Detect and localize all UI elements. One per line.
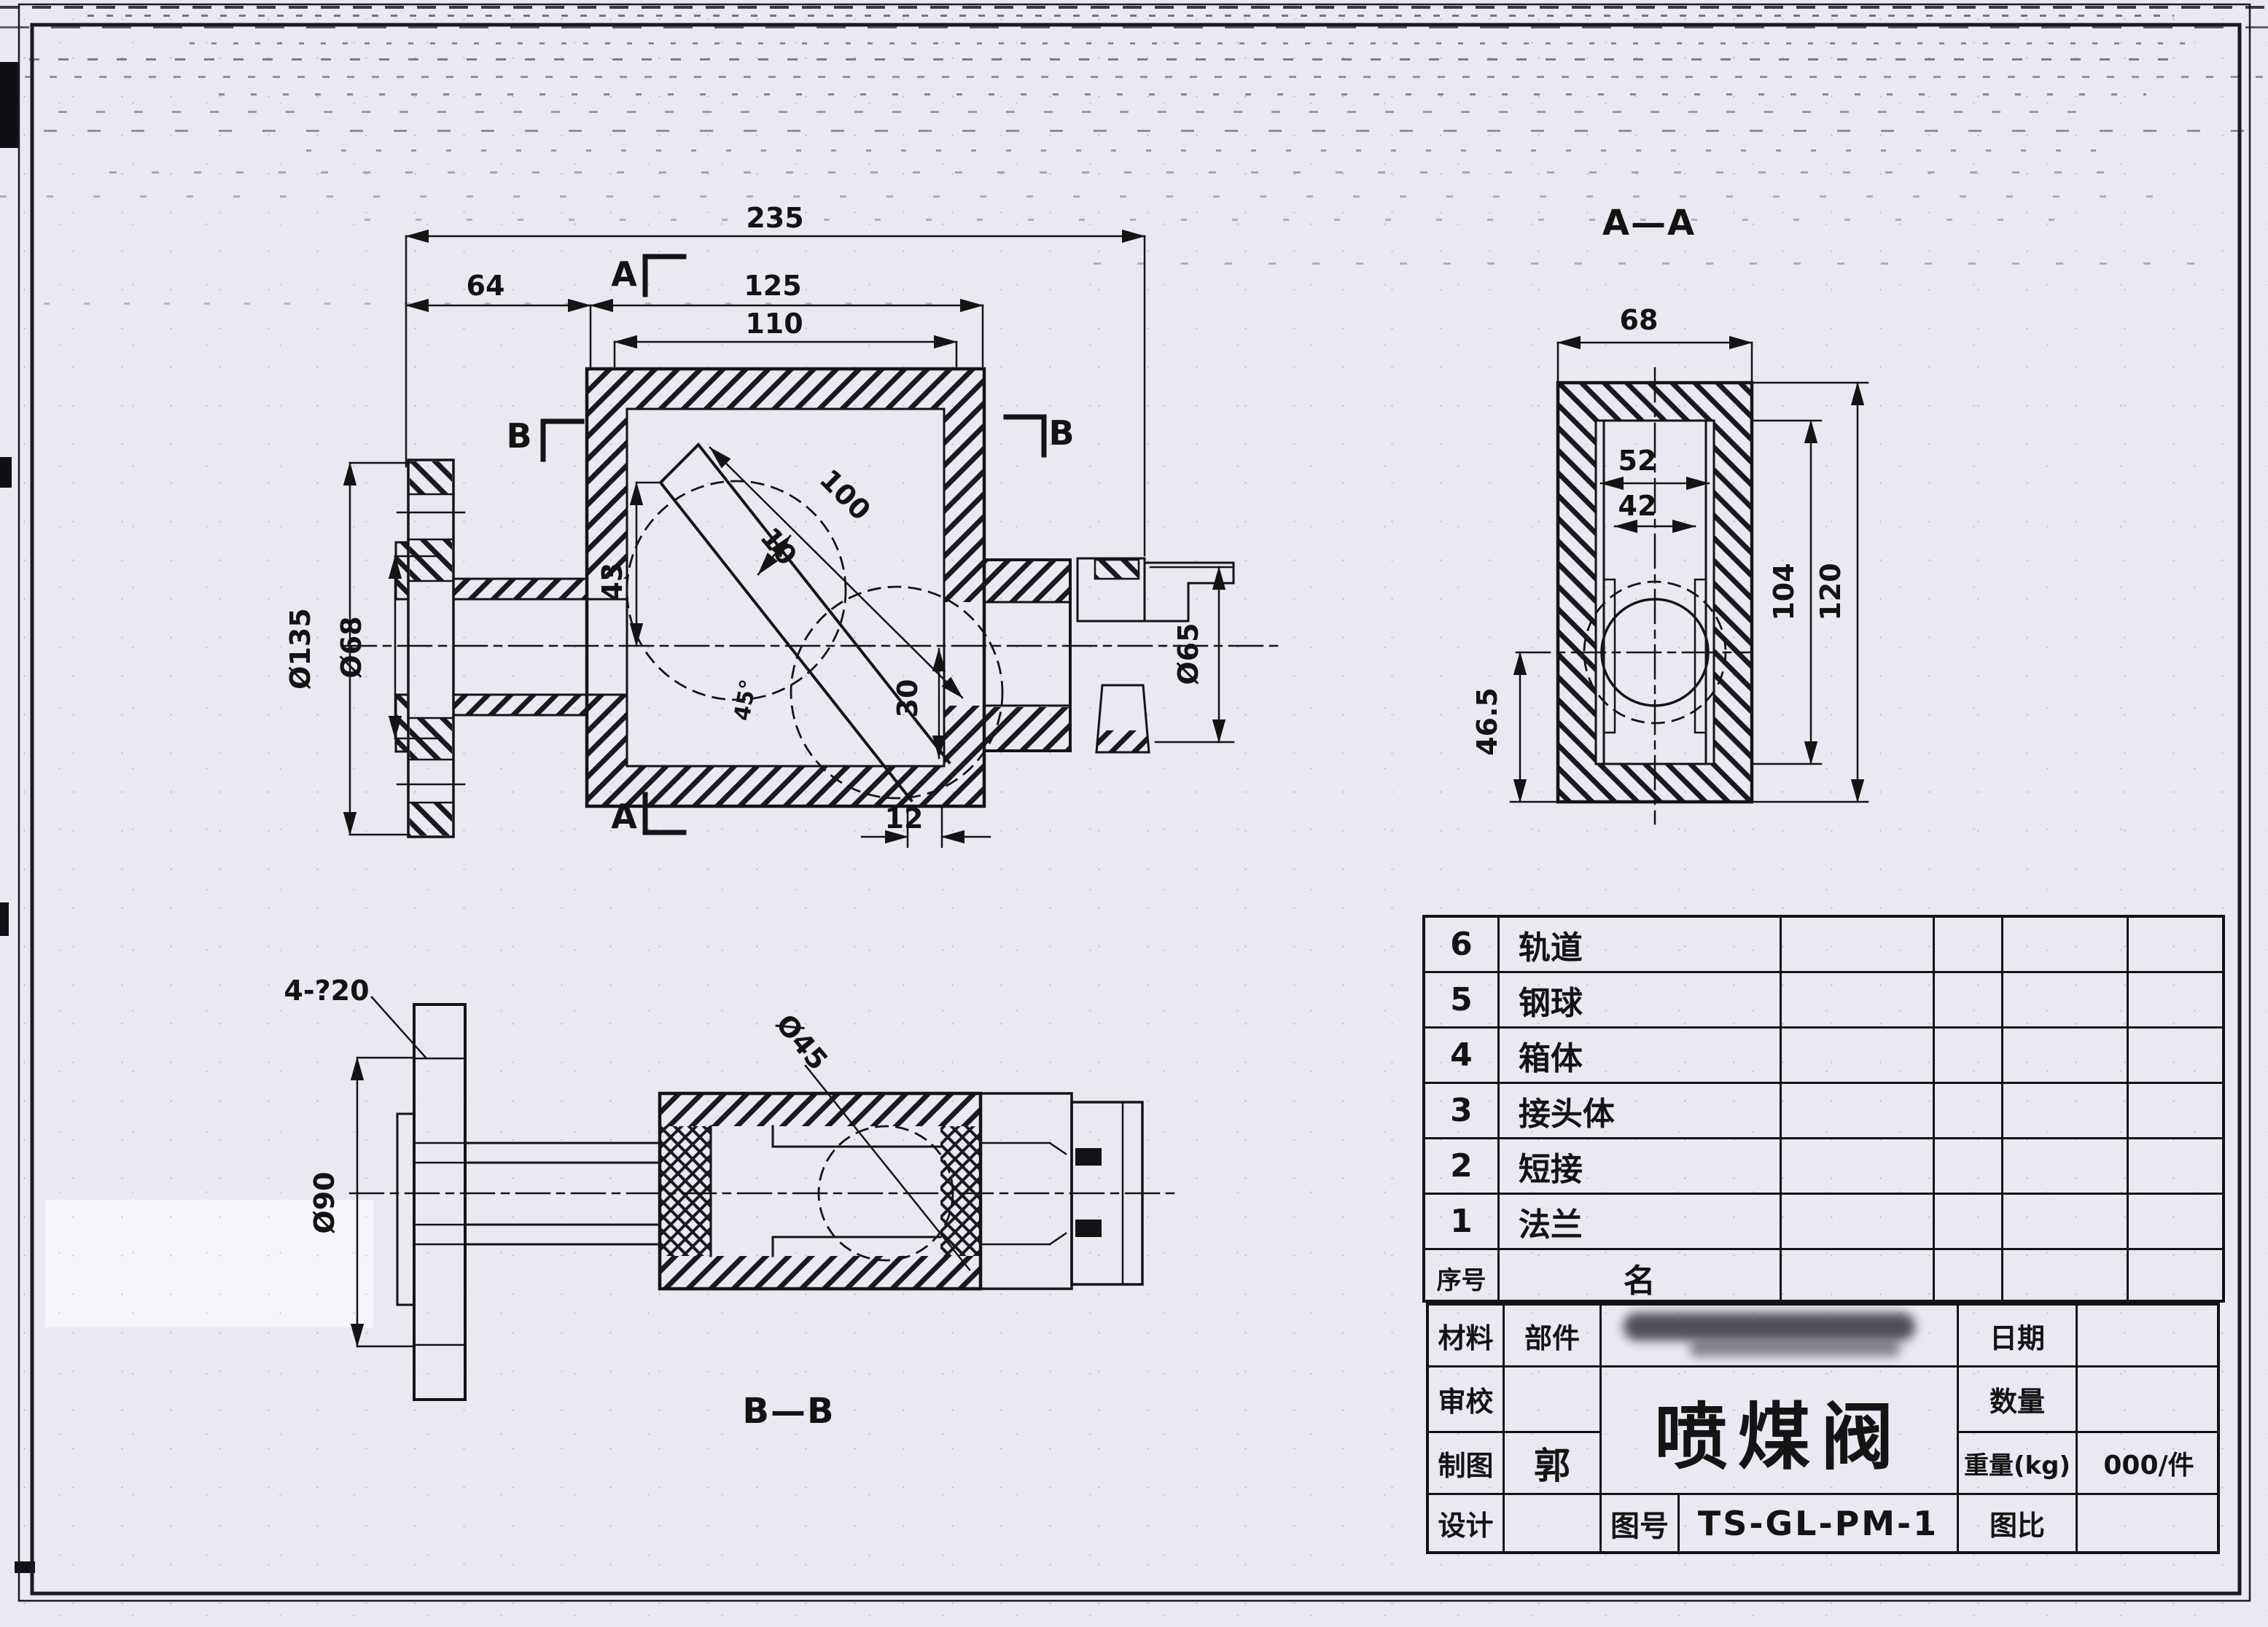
bb-section-view: 4-?20 Ø90 Ø45 B—B (284, 975, 1181, 1432)
dim-dia65: Ø65 (1172, 623, 1204, 684)
table-row: 5 钢球 (1425, 973, 2222, 1029)
bb-title: B—B (742, 1391, 835, 1432)
dim-dia135: Ø135 (284, 608, 316, 690)
dim-110: 110 (745, 308, 803, 340)
part-name: 钢球 (1500, 973, 1782, 1029)
parts-table: 6 轨道 5 钢球 4 箱体 3 接头体 2 短接 1 法兰 (1422, 915, 2225, 1303)
drawing-no: TS-GL-PM-1 (1680, 1495, 1959, 1551)
part-no: 1 (1425, 1195, 1500, 1250)
material-label: 材料 (1429, 1306, 1505, 1367)
part-name: 轨道 (1500, 918, 1782, 973)
dim-46-5: 46.5 (1471, 687, 1503, 756)
front-view: 235 64 125 110 43 100 10 30 45° 12 Ø65 Ø… (284, 202, 1279, 847)
dim-43: 43 (596, 563, 628, 601)
check-label: 审校 (1429, 1367, 1505, 1433)
part-no: 5 (1425, 973, 1500, 1029)
part-no: 2 (1425, 1139, 1500, 1195)
dim-dia68: Ø68 (335, 616, 367, 678)
dim-bolt-holes: 4-?20 (284, 975, 369, 1007)
section-label-b-left: B (506, 416, 531, 456)
section-label-a-bottom: A (611, 797, 637, 836)
dim-125: 125 (744, 270, 801, 302)
table-row: 6 轨道 (1425, 918, 2222, 973)
dim-42: 42 (1618, 490, 1657, 522)
weight-value: 000/件 (2078, 1433, 2220, 1495)
dim-64: 64 (467, 270, 505, 302)
part-label: 部件 (1505, 1306, 1602, 1367)
dim-68: 68 (1620, 304, 1659, 336)
product-title: 喷煤阀 (1602, 1367, 1959, 1495)
dim-angle: 45° (729, 677, 761, 722)
part-name: 短接 (1500, 1139, 1782, 1195)
section-label-b-right: B (1048, 413, 1074, 453)
table-row: 3 接头体 (1425, 1084, 2222, 1139)
part-name: 箱体 (1500, 1029, 1782, 1084)
design-label: 设计 (1429, 1495, 1505, 1551)
dim-12: 12 (885, 803, 924, 835)
smudge-cell (1602, 1306, 1959, 1367)
header-no: 序号 (1425, 1250, 1500, 1306)
scanned-engineering-drawing: 235 64 125 110 43 100 10 30 45° 12 Ø65 Ø… (0, 0, 2268, 1627)
qty-label: 数量 (1959, 1367, 2078, 1433)
title-block: 材料 审校 制图 设计 部件 郭 喷煤阀 图号 TS-GL-PM-1 日期 数量… (1426, 1303, 2220, 1554)
aa-section-view: A—A 68 52 42 104 120 46.5 (1471, 203, 1868, 824)
dim-235: 235 (746, 202, 803, 234)
aa-title: A—A (1602, 203, 1696, 243)
table-header-row: 序号 名 (1425, 1250, 2222, 1306)
section-label-a-top: A (611, 254, 637, 294)
part-no: 4 (1425, 1029, 1500, 1084)
part-no: 6 (1425, 918, 1500, 973)
dim-30: 30 (892, 679, 924, 718)
weight-label: 重量(kg) (1959, 1433, 2078, 1495)
dim-dia45: Ø45 (770, 1008, 834, 1077)
draftsman-name: 郭 (1505, 1433, 1602, 1495)
dim-100: 100 (814, 463, 877, 526)
table-row: 1 法兰 (1425, 1195, 2222, 1250)
draft-label: 制图 (1429, 1433, 1505, 1495)
header-name: 名 (1500, 1250, 1782, 1306)
dim-104: 104 (1768, 563, 1800, 620)
part-name: 接头体 (1500, 1084, 1782, 1139)
dim-dia90: Ø90 (308, 1171, 340, 1233)
dim-120: 120 (1815, 563, 1847, 620)
table-row: 4 箱体 (1425, 1029, 2222, 1084)
part-no: 3 (1425, 1084, 1500, 1139)
dim-10: 10 (754, 521, 803, 571)
date-label: 日期 (1959, 1306, 2078, 1367)
scale-label: 图比 (1959, 1495, 2078, 1551)
dim-52: 52 (1618, 445, 1657, 477)
part-name: 法兰 (1500, 1195, 1782, 1250)
table-row: 2 短接 (1425, 1139, 2222, 1195)
drawing-no-label: 图号 (1602, 1495, 1680, 1551)
